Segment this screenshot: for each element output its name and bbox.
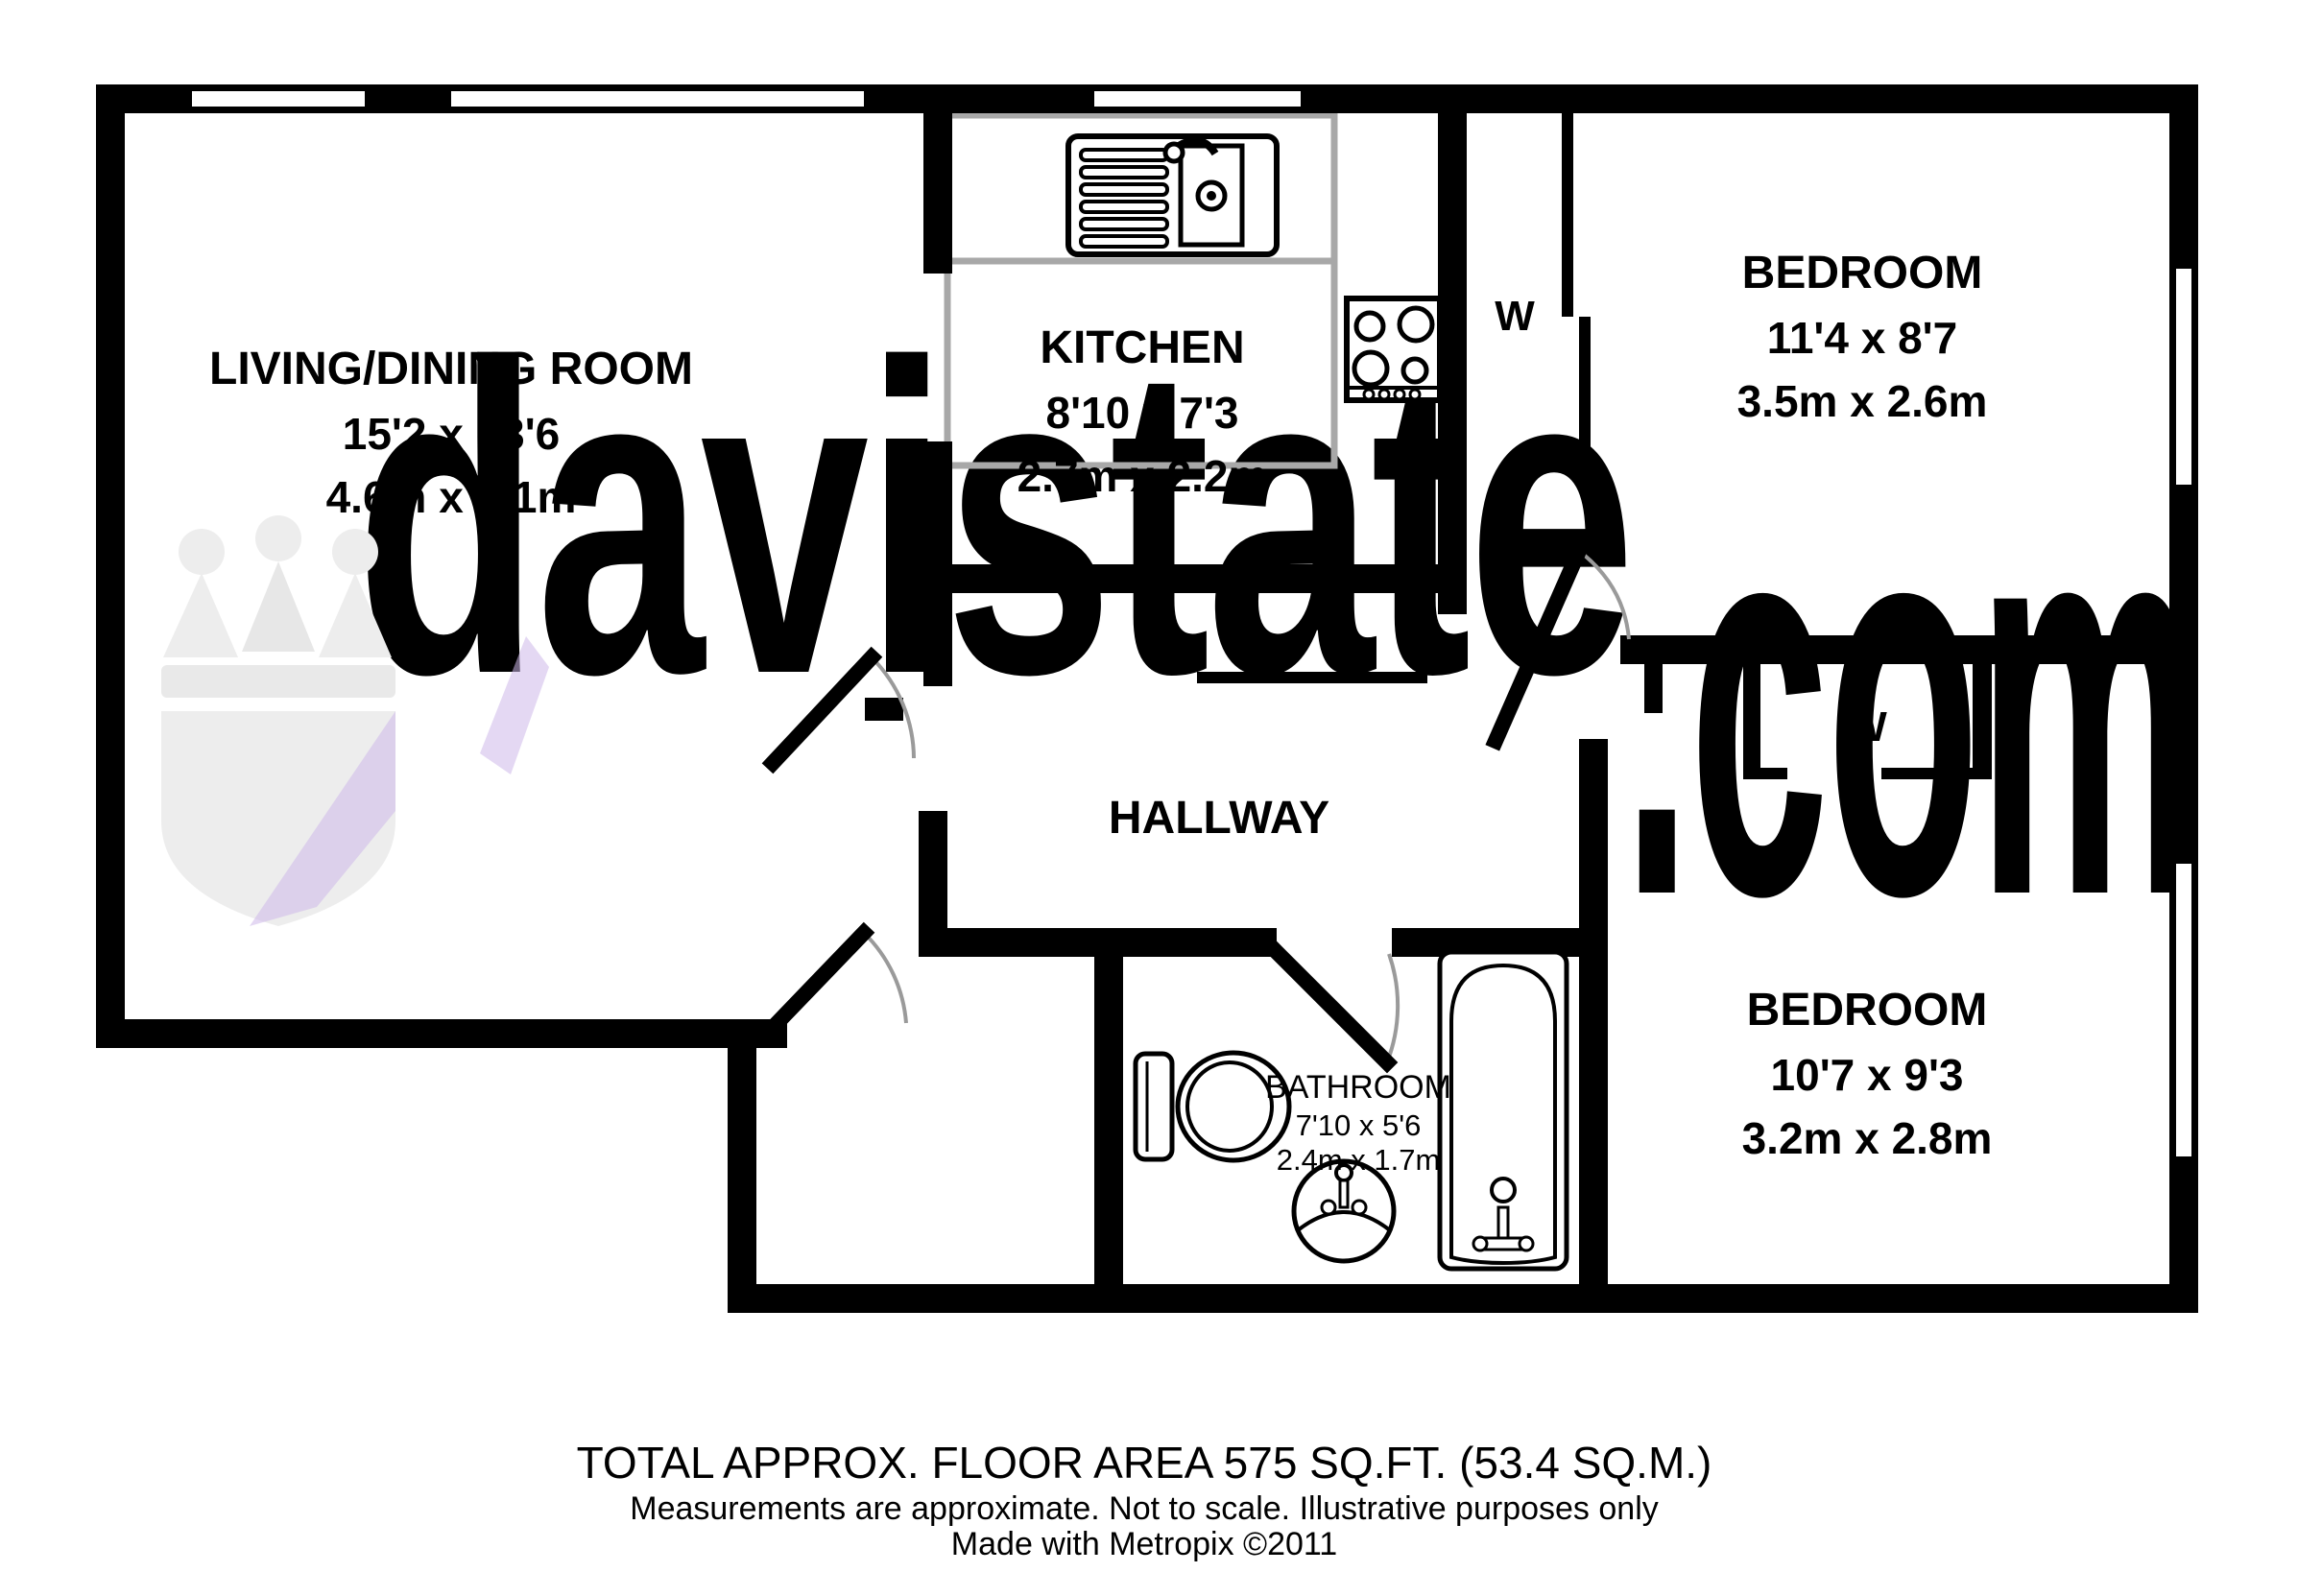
wall-door-jamb-stub — [1644, 664, 1663, 713]
wall-hall-bulkhead — [1197, 672, 1427, 683]
wall-bedroom1-bottom — [1620, 635, 2198, 664]
footer-disclaimer: Measurements are approximate. Not to sca… — [630, 1490, 1659, 1527]
bathtub-icon — [1440, 952, 1567, 1269]
wall-kitchen-bottom — [923, 564, 1467, 593]
wall-bathroom-west — [1094, 957, 1123, 1284]
floorplan-page: davistate .com — [0, 0, 2298, 1596]
wall-bedroom1-west — [1579, 317, 1591, 475]
wall-kitchen-divider-top — [923, 113, 952, 274]
wall-wardrobe2-front-b — [1881, 768, 1973, 779]
kitchen-label: KITCHEN — [1040, 322, 1244, 373]
wall-living-bottom — [96, 1019, 787, 1048]
bedroom2-label: BEDROOM — [1747, 985, 1988, 1036]
wall-left — [96, 84, 125, 1048]
footer-total-area: TOTAL APPROX. FLOOR AREA 575 SQ.FT. (53.… — [577, 1438, 1712, 1488]
hob-icon — [1347, 298, 1440, 400]
watermark-tld-text: .com — [1622, 389, 2198, 1011]
bedroom2-metric: 3.2m x 2.8m — [1742, 1113, 1993, 1163]
door-bathroom — [1277, 952, 1398, 1062]
wall-wardrobe2-left — [1743, 664, 1760, 779]
kitchen-imperial: 8'10 x 7'3 — [1046, 388, 1239, 438]
hallway-label: HALLWAY — [1109, 793, 1329, 844]
living-room-imperial: 15'2 x 13'6 — [343, 409, 561, 459]
kitchen-metric: 2.7m x 2.2m — [1017, 451, 1268, 501]
sink-icon — [1068, 136, 1277, 254]
footer-credit: Made with Metropix ©2011 — [951, 1526, 1337, 1562]
window-bedroom2 — [2169, 864, 2198, 1156]
wall-wardrobe2-front-a — [1760, 768, 1787, 779]
wall-wardrobe2-right — [1973, 664, 1992, 779]
door-entrance — [766, 933, 906, 1035]
wall-bottom — [728, 1284, 2198, 1313]
living-room-metric: 4.6m x 4.1m — [326, 472, 577, 522]
window-living-2 — [451, 84, 864, 113]
floorplan-canvas: davistate .com — [0, 0, 2298, 1596]
window-bedroom1 — [2169, 269, 2198, 485]
bedroom1-label: BEDROOM — [1742, 248, 1983, 298]
wardrobe1-label: W — [1495, 293, 1535, 340]
wall-living-door-stub — [865, 698, 903, 721]
bedroom1-metric: 3.5m x 2.6m — [1737, 376, 1988, 426]
wall-bedroom2-west — [1579, 739, 1608, 1313]
wall-landing-left — [728, 1019, 756, 1313]
wardrobe2-label: W — [1847, 703, 1887, 750]
bathroom-imperial: 7'10 x 5'6 — [1296, 1108, 1422, 1142]
window-kitchen — [1094, 84, 1301, 113]
window-living-1 — [192, 84, 365, 113]
bathroom-metric: 2.4m x 1.7m — [1277, 1143, 1441, 1177]
living-room-label: LIVING/DINING ROOM — [209, 344, 693, 394]
bedroom2-imperial: 10'7 x 9'3 — [1771, 1050, 1964, 1100]
bathroom-label: BATHROOM — [1265, 1069, 1451, 1106]
wall-wardrobe1-partition — [1562, 113, 1573, 317]
wall-bathroom-top-a — [919, 928, 1277, 957]
bedroom1-imperial: 11'4 x 8'7 — [1767, 313, 1957, 363]
wall-kitchen-divider-bottom — [923, 441, 952, 686]
